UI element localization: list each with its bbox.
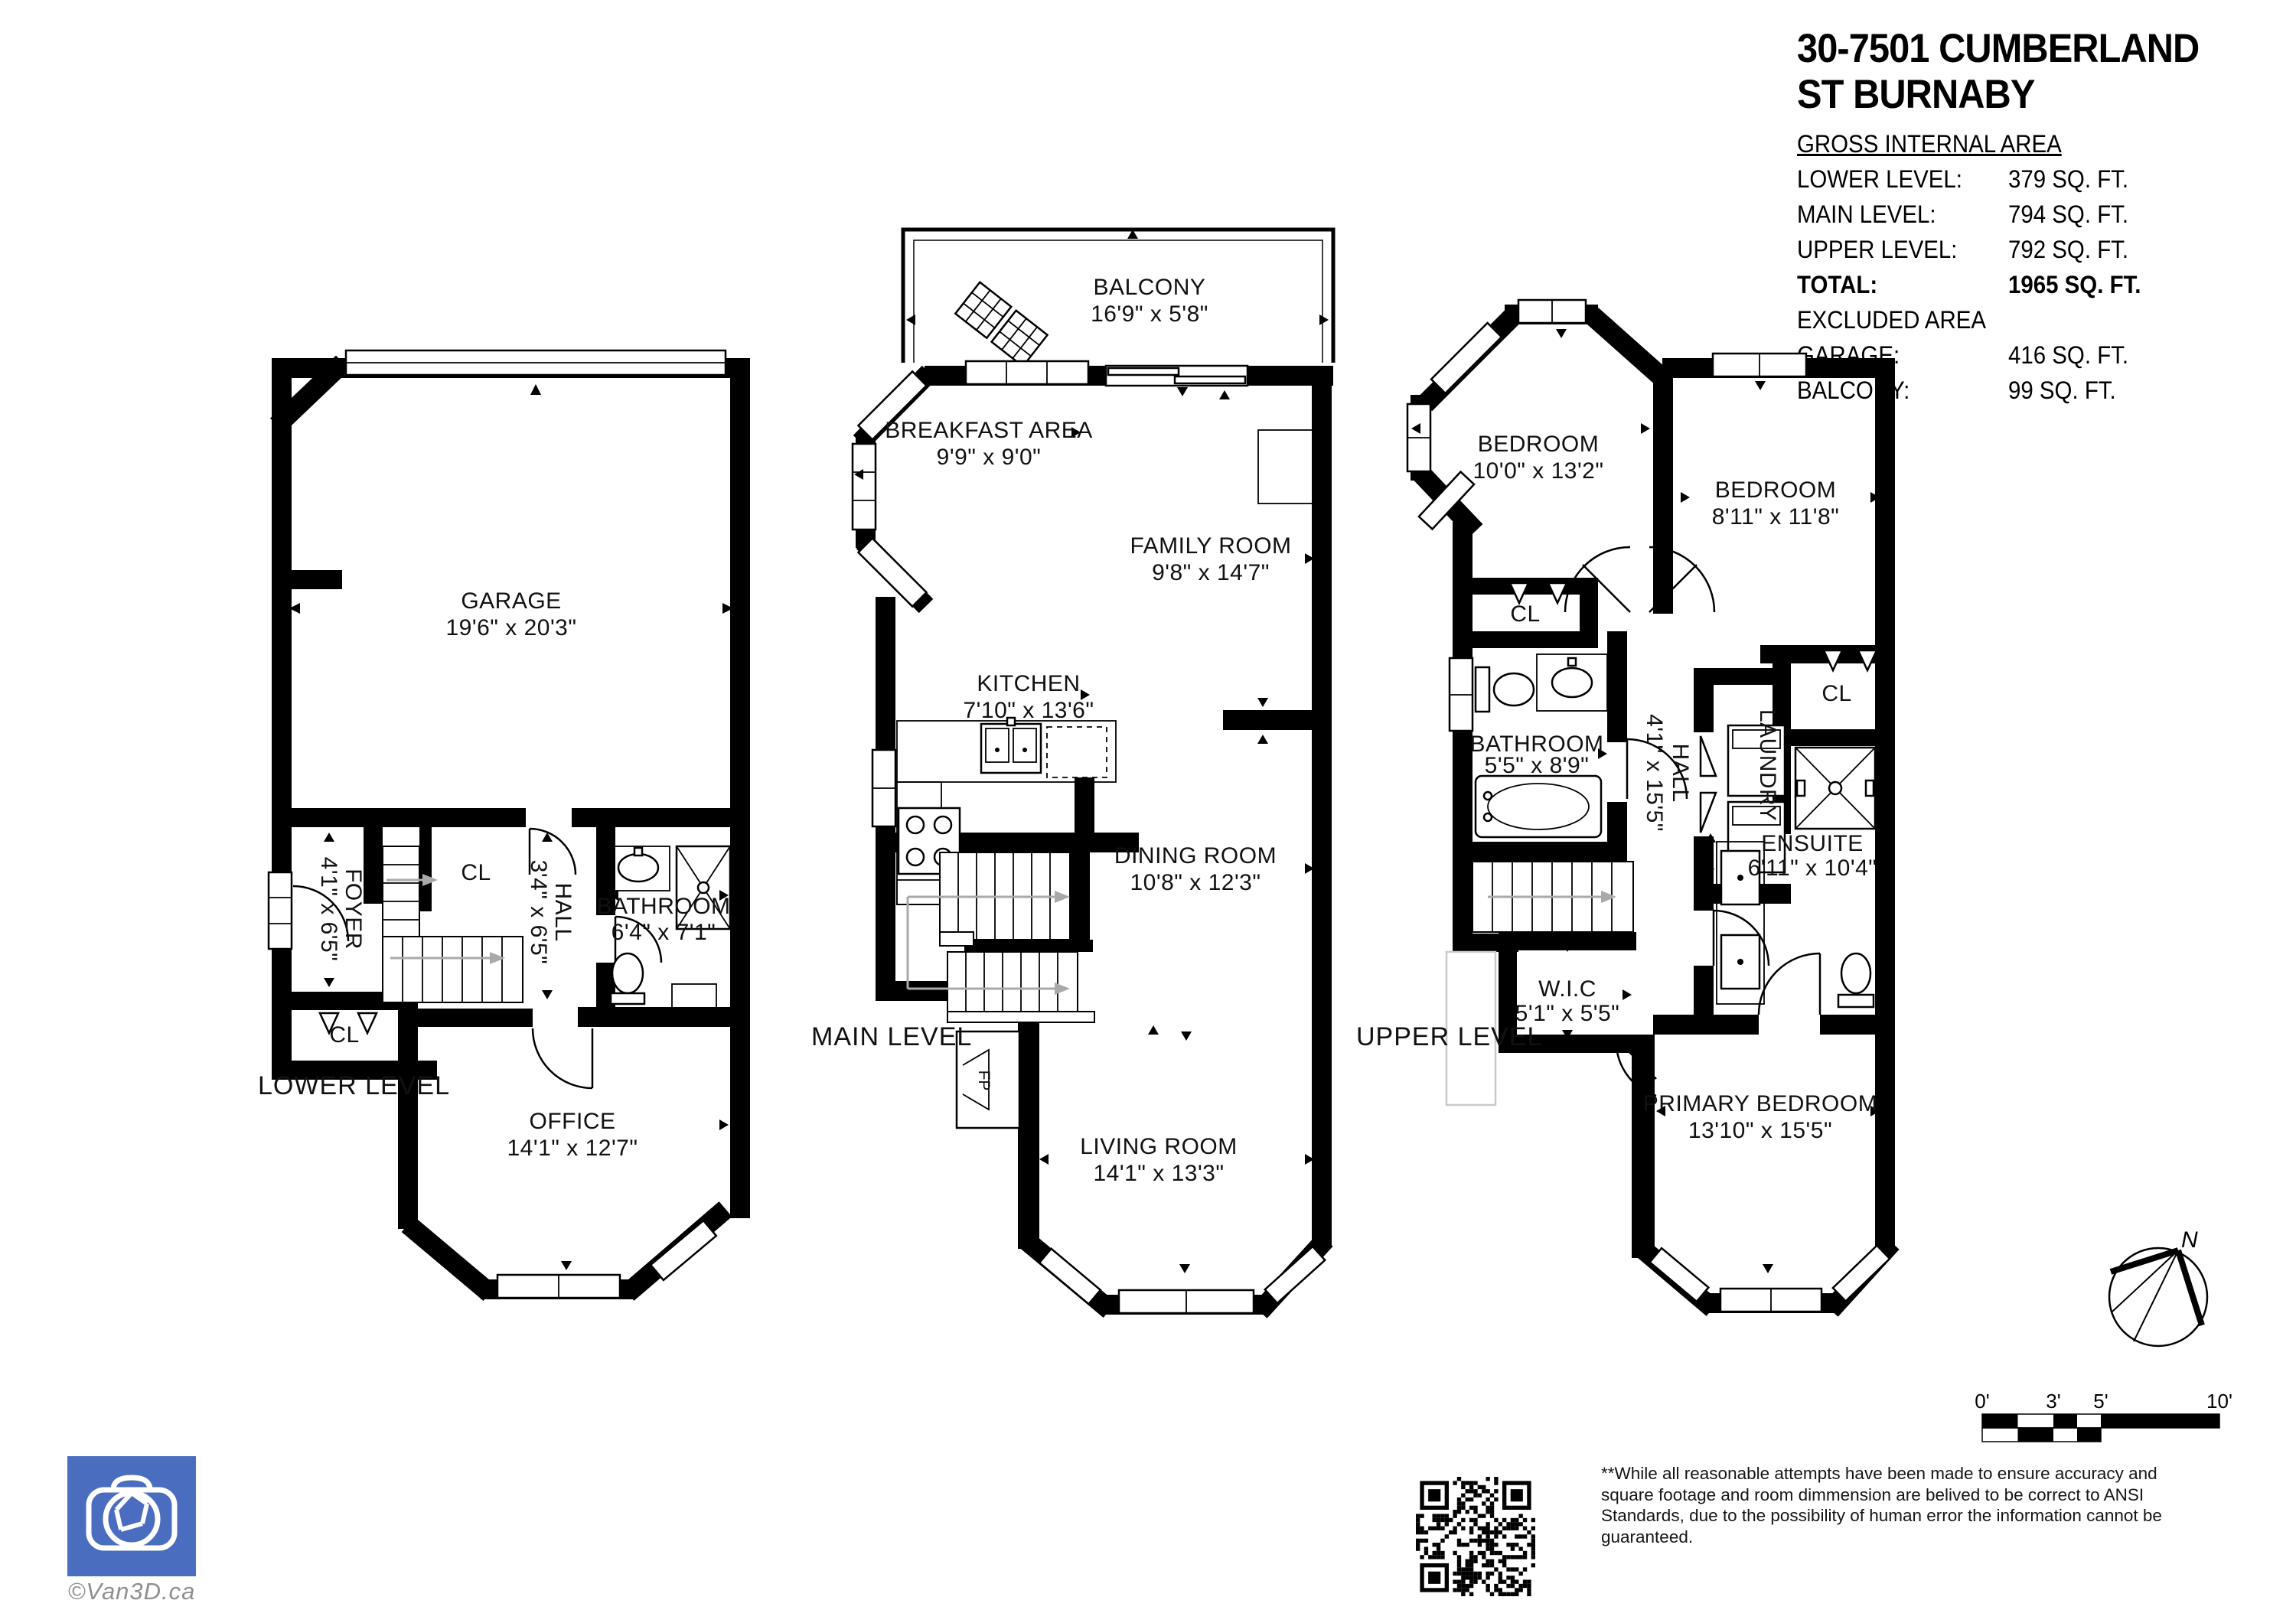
room-bathroom-upper: BATHROOM 5'5" x 8'9": [1469, 732, 1603, 778]
room-hall-upper: HALL 4'1" x 15'5": [1642, 714, 1693, 832]
upper-level-label: UPPER LEVEL: [1356, 1022, 1542, 1051]
van3d-logo: [67, 1456, 196, 1576]
svg-text:6'4" x 7'1": 6'4" x 7'1": [612, 920, 716, 945]
svg-text:10'8" x 12'3": 10'8" x 12'3": [1130, 870, 1261, 895]
svg-text:BATHROOM: BATHROOM: [596, 894, 730, 919]
svg-text:9'9" x 9'0": 9'9" x 9'0": [937, 445, 1042, 470]
room-primary: PRIMARY BEDROOM 13'10" x 15'5": [1643, 1091, 1877, 1143]
compass-north-label: N: [2181, 1227, 2198, 1253]
svg-text:PRIMARY BEDROOM: PRIMARY BEDROOM: [1643, 1091, 1877, 1116]
svg-text:10': 10': [2206, 1390, 2232, 1413]
lower-stairs: [383, 846, 523, 1002]
floor-plan-main: FP BALCONY 16'9" x 5'8" BREAKFAST: [796, 214, 1347, 1347]
svg-text:14'1" x 12'7": 14'1" x 12'7": [507, 1136, 638, 1161]
svg-text:3': 3': [2046, 1390, 2060, 1413]
svg-text:7'10" x 13'6": 7'10" x 13'6": [963, 698, 1094, 723]
svg-text:LIVING ROOM: LIVING ROOM: [1080, 1134, 1238, 1159]
main-level-label: MAIN LEVEL: [811, 1022, 972, 1051]
room-breakfast: BREAKFAST AREA 9'9" x 9'0": [885, 418, 1093, 470]
area-row-main: MAIN LEVEL: 794 SQ. FT.: [1797, 200, 2290, 229]
room-hall: HALL 3'4" x 6'5": [526, 860, 576, 965]
svg-text:3'4" x 6'5": 3'4" x 6'5": [526, 860, 551, 965]
svg-text:HALL: HALL: [550, 882, 576, 941]
page-title: 30-7501 CUMBERLAND ST BURNABY: [1797, 26, 2290, 118]
room-cl1: CL: [1510, 601, 1540, 627]
compass-needle: [2111, 1250, 2178, 1272]
room-foyer: FOYER 4'1" x 6'5": [316, 857, 366, 962]
svg-text:13'10" x 15'5": 13'10" x 15'5": [1688, 1118, 1832, 1143]
balcony-table-icon: [955, 282, 1047, 367]
room-kitchen: KITCHEN 7'10" x 13'6": [963, 671, 1094, 723]
svg-text:FP: FP: [975, 1071, 993, 1091]
lower-level-label: LOWER LEVEL: [258, 1071, 450, 1100]
svg-text:4'1" x 15'5": 4'1" x 15'5": [1642, 714, 1667, 832]
qr-code: [1416, 1474, 1535, 1599]
room-ensuite: ENSUITE 6'11" x 10'4": [1748, 831, 1877, 881]
svg-text:16'9" x 5'8": 16'9" x 5'8": [1091, 301, 1208, 327]
svg-text:BEDROOM: BEDROOM: [1478, 432, 1600, 457]
svg-text:10'0" x 13'2": 10'0" x 13'2": [1473, 458, 1603, 484]
svg-text:8'11" x 11'8": 8'11" x 11'8": [1712, 504, 1840, 530]
area-row-upper: UPPER LEVEL: 792 SQ. FT.: [1797, 236, 2290, 264]
room-office: OFFICE 14'1" x 12'7": [507, 1109, 638, 1161]
logo-caption: ©Van3D.ca: [40, 1578, 223, 1605]
room-bedroom2: BEDROOM 8'11" x 11'8": [1712, 477, 1840, 530]
svg-text:ENSUITE: ENSUITE: [1761, 831, 1864, 856]
svg-text:5': 5': [2093, 1390, 2108, 1413]
room-wic: W.I.C 5'1" x 5'5": [1515, 976, 1620, 1026]
title-line1: 30-7501 CUMBERLAND: [1797, 26, 2290, 72]
svg-text:BALCONY: BALCONY: [1094, 275, 1206, 300]
svg-text:W.I.C: W.I.C: [1538, 976, 1596, 1002]
svg-text:14'1" x 13'3": 14'1" x 13'3": [1093, 1161, 1224, 1186]
room-family: FAMILY ROOM 9'8" x 14'7": [1130, 533, 1291, 585]
disclaimer-text: **While all reasonable attempts have bee…: [1601, 1463, 2275, 1547]
scale-bar: 0' 3' 5' 10': [1959, 1383, 2250, 1448]
room-laundry: LAUNDRY: [1755, 709, 1780, 821]
svg-text:FOYER: FOYER: [341, 869, 366, 950]
svg-text:BREAKFAST AREA: BREAKFAST AREA: [885, 418, 1093, 443]
room-bedroom1: BEDROOM 10'0" x 13'2": [1473, 432, 1603, 484]
room-bathroom: BATHROOM 6'4" x 7'1": [596, 894, 730, 945]
room-garage: GARAGE 19'6" x 20'3": [445, 588, 576, 640]
area-row-lower: LOWER LEVEL: 379 SQ. FT.: [1797, 165, 2290, 194]
room-balcony: BALCONY 16'9" x 5'8": [1091, 275, 1208, 327]
title-line2: ST BURNABY: [1797, 72, 2290, 118]
svg-text:GARAGE: GARAGE: [461, 588, 561, 614]
svg-text:OFFICE: OFFICE: [530, 1109, 616, 1134]
svg-text:0': 0': [1975, 1390, 1989, 1413]
svg-text:6'11" x 10'4": 6'11" x 10'4": [1748, 855, 1877, 881]
svg-text:5'5" x 8'9": 5'5" x 8'9": [1485, 753, 1590, 778]
scale-bar-blocks: [1982, 1414, 2219, 1442]
svg-text:KITCHEN: KITCHEN: [977, 671, 1080, 696]
floor-plan-upper: BEDROOM 10'0" x 13'2" BEDROOM 8'11" x 11…: [1343, 291, 1902, 1362]
room-living: LIVING ROOM 14'1" x 13'3": [1080, 1134, 1238, 1186]
svg-text:4'1" x 6'5": 4'1" x 6'5": [316, 857, 341, 962]
svg-text:9'8" x 14'7": 9'8" x 14'7": [1152, 560, 1270, 585]
upper-shower: [1795, 748, 1875, 829]
svg-text:19'6" x 20'3": 19'6" x 20'3": [445, 615, 576, 640]
room-cl2: CL: [1821, 681, 1851, 706]
room-cl-bottom: CL: [329, 1022, 359, 1048]
floor-plan-lower: GARAGE 19'6" x 20'3" CL FOYER 4'1" x 6'5…: [253, 329, 788, 1347]
svg-text:DINING ROOM: DINING ROOM: [1114, 843, 1277, 869]
compass: N: [2093, 1228, 2227, 1362]
svg-text:HALL: HALL: [1668, 743, 1693, 802]
svg-text:BEDROOM: BEDROOM: [1715, 477, 1837, 503]
floorplan-sheet: 30-7501 CUMBERLAND ST BURNABY GROSS INTE…: [0, 0, 2296, 1623]
gross-area-heading: GROSS INTERNAL AREA: [1797, 130, 2290, 158]
svg-text:FAMILY ROOM: FAMILY ROOM: [1130, 533, 1291, 559]
room-dining: DINING ROOM 10'8" x 12'3": [1114, 843, 1277, 895]
room-cl-top: CL: [461, 860, 491, 885]
